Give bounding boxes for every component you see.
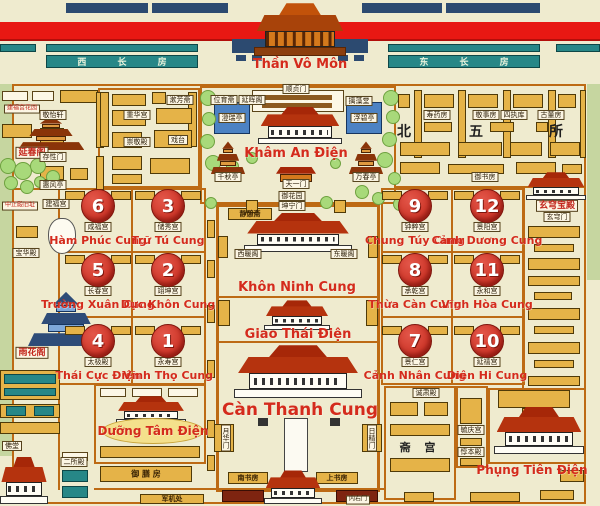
wall-gate <box>218 236 228 258</box>
building <box>424 402 448 416</box>
palace-label-cn: 太极殿 <box>85 357 112 367</box>
enclosure-bar <box>262 95 332 100</box>
xinuange-label: 西暖阁 <box>235 249 262 259</box>
palace-label-vn: Dực Khôn Cung <box>121 298 216 311</box>
palace-cell-dienhi: 10 延禧宫 Diên Hi Cung <box>453 325 521 387</box>
label-box-blank <box>2 91 28 101</box>
building <box>528 308 580 320</box>
building-teal <box>6 406 26 416</box>
chonghuagong-label: 重华宫 <box>124 110 151 120</box>
tree <box>382 132 397 147</box>
palace-number-badge: 10 <box>470 324 504 358</box>
palace-number-badge: 9 <box>398 189 432 223</box>
building <box>390 458 450 472</box>
chengsudian-label: 诚肃殿 <box>413 388 440 398</box>
tree <box>355 185 369 199</box>
fubi-label: 浮碧亭 <box>351 113 378 123</box>
gate-crenel <box>236 55 246 61</box>
palace-cell-canhduong: 12 景阳宫 Cảnh Dương Cung <box>453 190 521 252</box>
palace-label-cn: 景阳宫 <box>474 222 501 232</box>
palace-cell-canhnhan: 7 景仁宫 Cảnh Nhân Cung <box>381 325 449 387</box>
building <box>580 90 586 158</box>
qianqiu-label: 千秋亭 <box>215 172 242 182</box>
tree <box>202 112 216 126</box>
long-rooms-bar <box>388 44 540 52</box>
sizhiku-label: 四执库 <box>501 110 528 120</box>
khon-ninh-cung-label: Khôn Ninh Cung <box>238 280 356 295</box>
palace-number-badge: 6 <box>81 189 115 223</box>
building <box>156 108 192 124</box>
yangxin-callout: Dưỡng Tâm Điện <box>102 418 204 444</box>
building <box>534 292 572 300</box>
wanchun-pavilion <box>348 140 384 174</box>
building <box>528 342 580 354</box>
xuanqiong-hall <box>526 170 586 200</box>
can-thanh-cung-label: Càn Thanh Cung <box>222 400 378 420</box>
jingyixuan-label: 敬怡轩 <box>40 110 67 120</box>
building <box>70 168 88 180</box>
palace-label-vn: Trữ Tú Cung <box>132 234 205 247</box>
building <box>528 376 580 386</box>
palace-number-badge: 11 <box>470 253 504 287</box>
shufangzhai-label: 漱芳斋 <box>167 95 194 105</box>
jianfu-garden-label: 建福宫花园 <box>4 105 40 114</box>
building <box>390 424 450 436</box>
shunzhen-gate-label: 顺贞门 <box>283 84 310 94</box>
southwest-corner-hall <box>0 454 48 504</box>
rijing-gate-label: 日精门 <box>367 425 377 452</box>
building <box>152 92 166 104</box>
building <box>460 398 482 424</box>
xuanqiong-label: 玄穹宝殿 <box>536 200 578 212</box>
building <box>540 490 574 500</box>
palace-label-cn: 钟粹宫 <box>402 222 429 232</box>
building <box>400 142 450 156</box>
palace-label-cn: 承乾宫 <box>402 286 429 296</box>
yushanfang-label: 御 膳 房 <box>131 469 161 480</box>
zhongzheng-label: 中正殿旧址 <box>2 202 38 211</box>
building <box>513 94 543 108</box>
weiyuzhai-label: 位育斋 <box>211 95 238 105</box>
yuhuage-label: 雨花阁 <box>15 347 48 359</box>
building <box>470 492 520 502</box>
giao-thai-dien-label: Giao Thái Điện <box>245 327 352 342</box>
building <box>536 122 548 132</box>
junjichu-label: 军机处 <box>162 494 183 504</box>
building <box>112 156 142 170</box>
nanshufang-label: 南书房 <box>238 473 259 483</box>
green-margin <box>587 84 600 280</box>
wall-gate <box>218 300 230 326</box>
yuehua-gate-label: 月华门 <box>221 425 231 452</box>
xuanqiongmen-label: 玄穹门 <box>544 212 571 222</box>
gallery-block <box>207 260 215 278</box>
qianqing-hall <box>234 342 362 398</box>
jiaotai-hall <box>264 298 330 330</box>
building <box>404 492 434 502</box>
building <box>458 142 502 156</box>
building <box>112 174 142 184</box>
building <box>96 156 104 190</box>
huifengting-label: 惠风亭 <box>40 180 67 190</box>
palace-label-vn: Cảnh Dương Cung <box>432 234 543 247</box>
kunning-gate-label: 坤宁门 <box>279 201 306 211</box>
palace-label-cn: 永和宫 <box>474 286 501 296</box>
dunbendian-label: 惇本殿 <box>458 447 485 457</box>
gudongfang-label: 古董房 <box>538 110 565 120</box>
building-teal <box>4 374 56 384</box>
building <box>398 94 410 108</box>
building <box>390 402 418 416</box>
east-long-rooms: 东 长 房 <box>388 55 540 68</box>
palace-number-badge: 12 <box>470 189 504 223</box>
yuqinggong-label: 毓庆宫 <box>458 425 485 435</box>
tree <box>4 176 18 190</box>
palace-number-badge: 3 <box>151 189 185 223</box>
building <box>534 360 574 368</box>
kham-an-dien-label: Khâm An Điện <box>244 146 347 161</box>
qianqiu-pavilion <box>210 140 246 174</box>
palace-label-cn: 景仁宫 <box>402 357 429 367</box>
building <box>100 446 200 458</box>
yuhuayuan-label: 御花园 <box>279 191 306 201</box>
jianfugong-label: 建福宫 <box>43 199 70 209</box>
tianyi-gate-label: 天一门 <box>283 179 310 189</box>
long-rooms-bar <box>556 44 600 52</box>
zhaigong-label: 斋 宫 <box>400 439 441 455</box>
north-wall-bar <box>446 3 540 13</box>
xitai-label: 戏台 <box>168 135 188 145</box>
qianqingmen-gate <box>264 468 322 504</box>
phung-tien-dien-label: Phụng Tiên Điện <box>476 463 587 477</box>
north-wall-bar <box>66 3 148 13</box>
shenwu-gate-tower <box>254 0 346 56</box>
building-teal <box>62 470 88 482</box>
building-teal <box>34 406 54 416</box>
corridor-wing <box>222 490 264 502</box>
dongnuange-label: 东暖阁 <box>331 249 358 259</box>
palace-number-badge: 4 <box>81 324 115 358</box>
gallery-block <box>207 455 215 471</box>
building <box>528 258 580 270</box>
palace-label-cn: 咸福宫 <box>85 222 112 232</box>
jingshifang-label: 敬事房 <box>473 110 500 120</box>
duong-tam-dien-label: Dưỡng Tâm Điện <box>98 424 209 438</box>
north-wall-bar <box>152 3 228 13</box>
suo-char: 所 <box>549 121 563 141</box>
gallery-block <box>207 220 215 238</box>
palace-cell-duckhon: 2 翊坤宫 Dực Khôn Cung <box>134 254 202 316</box>
building <box>100 92 109 147</box>
shenwu-gate-label: Thần Vô Môn <box>253 57 348 72</box>
baohuadian-label: 宝华殿 <box>13 248 40 258</box>
palace-cell-thaicuc: 4 太极殿 Thái Cực Điện <box>64 325 132 387</box>
palace-number-badge: 7 <box>398 324 432 358</box>
palace-label-cn: 翊坤宫 <box>155 286 182 296</box>
north-wall-bar <box>362 3 442 13</box>
bei-char: 北 <box>397 121 411 141</box>
building <box>424 122 452 132</box>
building <box>60 90 98 103</box>
building <box>0 422 60 434</box>
building <box>16 226 38 238</box>
building <box>112 94 146 106</box>
building-teal <box>62 486 88 498</box>
palace-number-badge: 5 <box>81 253 115 287</box>
palace-cell-vinhtho: 1 永寿宫 Vĩnh Thọ Cung <box>134 325 202 387</box>
shouyaofang-label: 寿药房 <box>424 110 451 120</box>
ersuodian-label: 二所殿 <box>61 457 88 467</box>
building <box>424 94 454 108</box>
palace-number-badge: 8 <box>398 253 432 287</box>
palace-cell-trutu: 3 储秀宫 Trữ Tú Cung <box>134 190 202 252</box>
tree <box>383 90 399 106</box>
chongjingdian-label: 崇敬殿 <box>124 137 151 147</box>
tree <box>20 180 34 194</box>
shangshufang-label: 上书房 <box>327 473 348 483</box>
wu-char: 五 <box>469 121 483 141</box>
building <box>460 438 482 446</box>
yushufang-label: 御书房 <box>472 172 499 182</box>
palace-label-cn: 储秀宫 <box>155 222 182 232</box>
long-rooms-bar <box>46 44 198 52</box>
central-walkway <box>284 418 308 472</box>
building <box>468 94 498 108</box>
fengxian-hall <box>494 404 584 454</box>
building <box>534 326 574 334</box>
wall <box>58 385 60 490</box>
palace-cell-hamphuc: 6 咸福宫 Hàm Phúc Cung <box>64 190 132 252</box>
palace-number-badge: 1 <box>151 324 185 358</box>
palace-cell-thuacan: 8 承乾宫 Thừa Càn Cung <box>381 254 449 316</box>
tree <box>205 197 217 209</box>
palace-cell-vinhhoa: 11 永和宫 Vĩnh Hòa Cung <box>453 254 521 316</box>
forbidden-city-map: 西 长 房 东 长 房 Thần Vô Môn 顺贞门 位育斋 延晖阁 摛藻堂 … <box>0 0 600 506</box>
building <box>490 122 514 132</box>
building <box>550 142 580 156</box>
palace-label-vn: Diên Hi Cung <box>447 369 527 382</box>
chengrui-label: 澄瑞亭 <box>219 113 246 123</box>
gate-crenel <box>354 55 364 61</box>
long-rooms-bar <box>0 44 36 52</box>
building <box>150 158 190 174</box>
yanhuige-label: 延晖阁 <box>239 95 266 105</box>
jingqizhai-label: 静憩斋 <box>240 209 261 219</box>
palace-label-cn: 延禧宫 <box>474 357 501 367</box>
building <box>558 94 576 108</box>
palace-label-vn: Vĩnh Hòa Cung <box>441 298 532 311</box>
building-teal <box>4 388 56 396</box>
palace-number-badge: 2 <box>151 253 185 287</box>
label-box-blank <box>32 91 54 101</box>
cunxingmen-label: 存性门 <box>40 152 67 162</box>
wanchun-label: 万春亭 <box>353 172 380 182</box>
wall <box>381 316 525 318</box>
palace-label-cn: 永寿宫 <box>155 357 182 367</box>
building <box>510 142 542 156</box>
chizaotang-label: 摛藻堂 <box>346 96 373 106</box>
neiyou-gate-label: 内右门 <box>346 496 370 505</box>
wall <box>522 190 524 390</box>
qinan-hall <box>258 104 342 144</box>
building <box>528 276 580 286</box>
palace-label-vn: Vĩnh Thọ Cung <box>123 369 213 382</box>
west-long-rooms: 西 长 房 <box>46 55 198 68</box>
palace-label-cn: 长春宫 <box>85 286 112 296</box>
fotang-label: 佛堂 <box>2 441 22 451</box>
tree <box>320 196 333 209</box>
building <box>400 162 440 174</box>
